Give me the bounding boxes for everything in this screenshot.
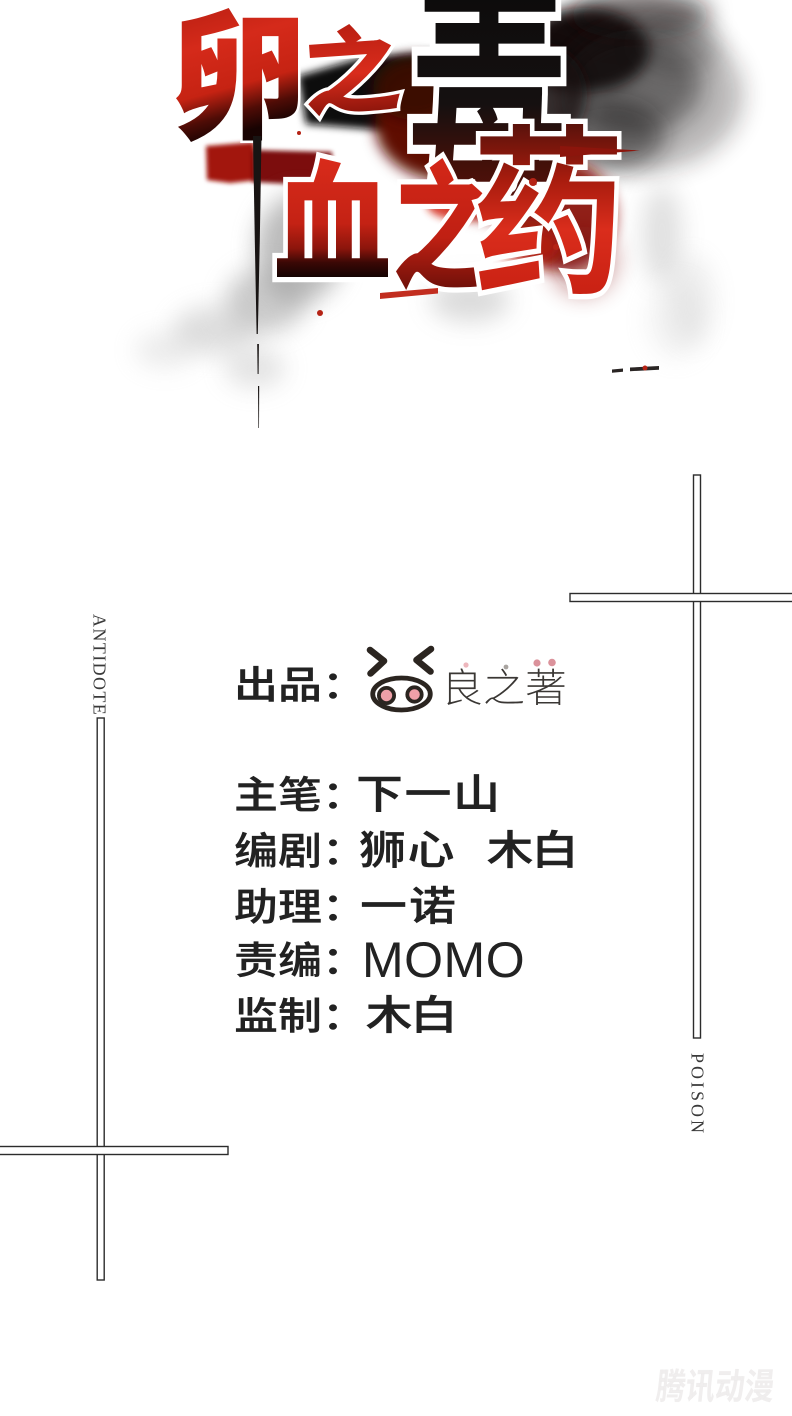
svg-text:MOMO: MOMO xyxy=(362,932,525,988)
svg-text:POISON: POISON xyxy=(688,1053,708,1136)
svg-text:ANTIDOTE: ANTIDOTE xyxy=(90,614,110,716)
